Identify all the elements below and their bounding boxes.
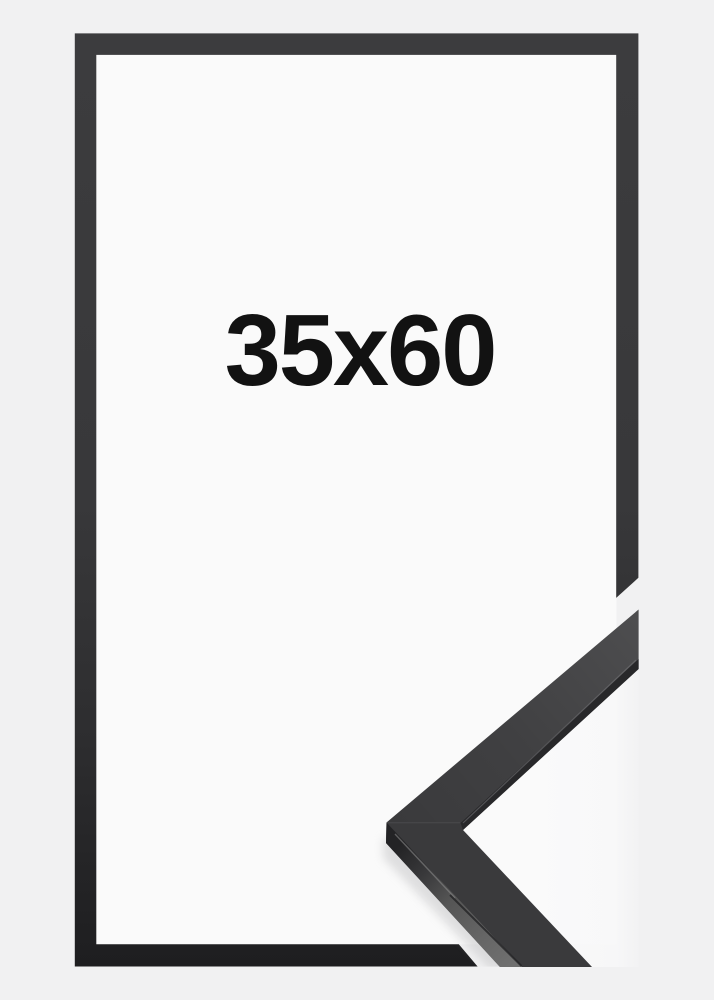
svg-text:35x60: 35x60 bbox=[225, 295, 496, 407]
